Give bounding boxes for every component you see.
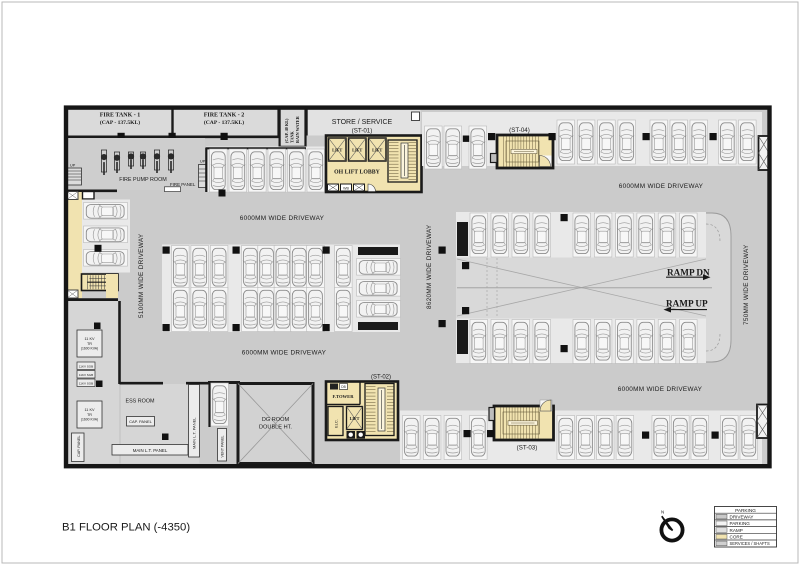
svg-text:(1600 KVA): (1600 KVA) <box>81 347 98 351</box>
svg-text:ESS ROOM: ESS ROOM <box>125 399 155 405</box>
svg-text:CORE: CORE <box>730 535 743 540</box>
svg-text:LIFT: LIFT <box>350 416 360 421</box>
svg-text:(ST-02): (ST-02) <box>371 375 391 381</box>
svg-text:FIRE TANK - 1: FIRE TANK - 1 <box>100 113 141 119</box>
svg-text:6000MM WIDE DRIVEWAY: 6000MM WIDE DRIVEWAY <box>619 183 704 190</box>
svg-text:PARKING: PARKING <box>735 508 756 513</box>
svg-text:MAIN L.T. PANEL: MAIN L.T. PANEL <box>133 448 168 453</box>
svg-text:8620MM WIDE DRIVEWAY: 8620MM WIDE DRIVEWAY <box>426 224 433 309</box>
svg-text:6000MM WIDE DRIVEWAY: 6000MM WIDE DRIVEWAY <box>242 350 327 357</box>
svg-text:RAIN WATER: RAIN WATER <box>295 115 300 143</box>
svg-text:(ST-04): (ST-04) <box>509 127 530 134</box>
svg-text:B1 FLOOR PLAN (-4350): B1 FLOOR PLAN (-4350) <box>62 522 190 534</box>
svg-text:FIRE PANEL: FIRE PANEL <box>170 182 196 187</box>
svg-text:6000MM WIDE DRIVEWAY: 6000MM WIDE DRIVEWAY <box>240 215 325 222</box>
svg-text:(ST-01): (ST-01) <box>352 127 373 134</box>
svg-text:(1600 KVA): (1600 KVA) <box>81 418 98 422</box>
svg-text:DOUBLE HT.: DOUBLE HT. <box>259 425 292 431</box>
svg-text:OH LIFT LOBBY: OH LIFT LOBBY <box>334 170 380 176</box>
svg-text:11KV SGB: 11KV SGB <box>79 382 93 386</box>
svg-text:DRIVEWAY: DRIVEWAY <box>730 514 754 519</box>
svg-text:TR: TR <box>87 342 92 346</box>
svg-text:N: N <box>661 510 664 515</box>
svg-text:MAIN L.T. PANEL: MAIN L.T. PANEL <box>192 417 197 449</box>
svg-text:(CAP - 137.5KL): (CAP - 137.5KL) <box>204 119 244 126</box>
svg-text:CAP. PANEL: CAP. PANEL <box>129 419 153 424</box>
svg-text:TANK: TANK <box>290 130 295 143</box>
svg-text:SERVICES / SHAFTS: SERVICES / SHAFTS <box>730 541 770 546</box>
svg-text:11KV SGB: 11KV SGB <box>79 373 93 377</box>
svg-text:(ST-03): (ST-03) <box>517 445 538 452</box>
svg-text:ELC.: ELC. <box>334 419 339 428</box>
svg-text:UP: UP <box>70 164 76 168</box>
svg-text:FIRE TANK - 2: FIRE TANK - 2 <box>204 113 245 119</box>
svg-text:DB: DB <box>341 385 345 389</box>
svg-text:FIRE PUMP ROOM: FIRE PUMP ROOM <box>119 177 167 183</box>
svg-text:11 KV: 11 KV <box>84 337 95 341</box>
svg-text:LIFT: LIFT <box>332 148 342 153</box>
svg-text:11 KV: 11 KV <box>84 408 95 412</box>
svg-text:11KV SGB: 11KV SGB <box>79 365 93 369</box>
svg-text:STORE / SERVICE: STORE / SERVICE <box>332 119 393 126</box>
svg-text:UP: UP <box>200 160 206 164</box>
svg-text:DG ROOM: DG ROOM <box>262 417 290 423</box>
svg-text:LIFT: LIFT <box>372 148 382 153</box>
svg-text:6000MM WIDE DRIVEWAY: 6000MM WIDE DRIVEWAY <box>618 386 703 393</box>
svg-text:750MM WIDE DRIVEWAY: 750MM WIDE DRIVEWAY <box>743 244 750 325</box>
svg-text:WB: WB <box>343 187 349 191</box>
svg-text:LIFT: LIFT <box>352 148 362 153</box>
svg-text:(CAP. 40 KL): (CAP. 40 KL) <box>284 118 289 143</box>
svg-text:RAMP: RAMP <box>730 528 743 533</box>
svg-text:PARKING: PARKING <box>730 521 751 526</box>
svg-text:TR: TR <box>87 413 92 417</box>
svg-text:VENT PANEL: VENT PANEL <box>221 435 225 457</box>
svg-text:F.TOWER: F.TOWER <box>332 394 354 399</box>
svg-text:(CAP - 137.5KL): (CAP - 137.5KL) <box>100 119 140 126</box>
svg-text:5100MM WIDE DRIVEWAY: 5100MM WIDE DRIVEWAY <box>138 233 145 318</box>
svg-text:CAP. PANEL: CAP. PANEL <box>77 435 81 457</box>
svg-text:RAMP UP: RAMP UP <box>666 299 708 309</box>
